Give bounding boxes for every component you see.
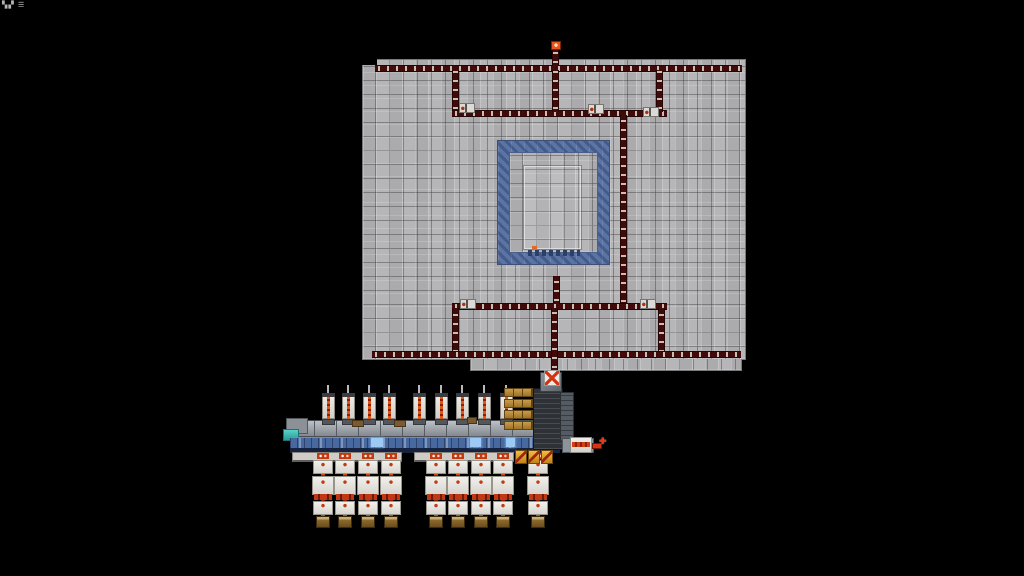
yellow-chest[interactable] — [515, 450, 527, 464]
platform-loader[interactable] — [544, 370, 560, 386]
machine-lower[interactable] — [471, 501, 491, 515]
transport-belt[interactable] — [658, 308, 665, 355]
machine-upper[interactable] — [358, 460, 378, 474]
machine-cap — [342, 393, 355, 397]
debug-overlay: ▚▞ ☰ — [2, 2, 25, 9]
heat-stripe — [440, 394, 443, 419]
furnace-machine[interactable] — [435, 385, 448, 425]
red-band — [529, 494, 547, 500]
inserter-mark — [317, 453, 329, 459]
machine-middle[interactable] — [470, 476, 492, 495]
machine-middle[interactable] — [357, 476, 379, 495]
belt-splitter[interactable] — [643, 107, 659, 117]
machine-lower[interactable] — [381, 501, 401, 515]
inserter-mark — [475, 453, 487, 459]
heat-stripe — [368, 394, 371, 419]
wooden-chest[interactable] — [384, 516, 398, 528]
red-band — [359, 494, 377, 500]
red-band — [427, 494, 445, 500]
machine-cap — [435, 393, 448, 397]
wooden-chest[interactable] — [496, 516, 510, 528]
assembler-column[interactable] — [527, 460, 549, 528]
red-cross-item-icon: ✚ — [599, 438, 607, 447]
transport-belt[interactable] — [552, 70, 559, 112]
gold-plate-stack[interactable] — [504, 388, 533, 397]
machine-cap — [383, 393, 396, 397]
machine-middle[interactable] — [312, 476, 334, 495]
assembler-column[interactable] — [380, 460, 402, 528]
inserter-mark — [362, 453, 374, 459]
small-crate[interactable] — [394, 420, 406, 427]
heat-stripe — [388, 394, 391, 419]
red-band — [314, 494, 332, 500]
wooden-chest[interactable] — [429, 516, 443, 528]
conveyor-lane — [290, 438, 560, 448]
gold-plate-stack[interactable] — [504, 399, 533, 408]
right-machine-stripe — [572, 442, 590, 447]
assembler-column[interactable] — [447, 460, 469, 528]
heat-stripe — [483, 394, 486, 419]
wooden-chest[interactable] — [316, 516, 330, 528]
machine-upper[interactable] — [493, 460, 513, 474]
inserter-mark — [385, 453, 397, 459]
machine-middle[interactable] — [334, 476, 356, 495]
yellow-chest[interactable] — [528, 450, 540, 464]
transport-belt[interactable] — [452, 303, 667, 310]
transport-belt[interactable] — [620, 115, 627, 305]
red-band — [494, 494, 512, 500]
machine-upper[interactable] — [426, 460, 446, 474]
wooden-chest[interactable] — [474, 516, 488, 528]
machine-lower[interactable] — [426, 501, 446, 515]
machine-upper[interactable] — [335, 460, 355, 474]
machine-base — [435, 419, 448, 425]
machine-upper[interactable] — [448, 460, 468, 474]
machine-middle[interactable] — [380, 476, 402, 495]
assembler-column[interactable] — [312, 460, 334, 528]
transport-belt[interactable] — [452, 308, 459, 355]
furnace-machine[interactable] — [413, 385, 426, 425]
machine-lower[interactable] — [358, 501, 378, 515]
furnace-machine[interactable] — [383, 385, 396, 425]
machine-base — [413, 419, 426, 425]
machine-upper[interactable] — [381, 460, 401, 474]
heat-stripe — [347, 394, 350, 419]
gold-plate-stack[interactable] — [504, 410, 533, 419]
platform-corner-notch — [361, 58, 377, 65]
cargo-elevator[interactable] — [533, 388, 563, 450]
heat-stripe — [461, 394, 464, 419]
conveyor-cargo-item[interactable] — [371, 438, 383, 447]
game-viewport: ▚▞ ☰ ✚ — [0, 0, 1024, 576]
machine-lower[interactable] — [335, 501, 355, 515]
machine-lower[interactable] — [493, 501, 513, 515]
machine-lower[interactable] — [448, 501, 468, 515]
stray-item[interactable] — [532, 246, 537, 250]
heat-stripe — [327, 394, 330, 419]
wooden-chest[interactable] — [531, 516, 545, 528]
machine-cap — [478, 393, 491, 397]
machine-cap — [322, 393, 335, 397]
gold-plate-stack[interactable] — [504, 421, 533, 430]
red-band — [449, 494, 467, 500]
machine-cap — [363, 393, 376, 397]
assembler-column[interactable] — [334, 460, 356, 528]
assembler-column[interactable] — [470, 460, 492, 528]
machine-base — [478, 419, 491, 425]
inserter-mark — [430, 453, 442, 459]
wooden-chest[interactable] — [361, 516, 375, 528]
machine-cap — [456, 393, 469, 397]
conveyor-cargo-item[interactable] — [470, 438, 481, 447]
machine-middle[interactable] — [492, 476, 514, 495]
furnace-machine[interactable] — [322, 385, 335, 425]
machine-base — [363, 419, 376, 425]
transport-belt[interactable] — [656, 70, 663, 112]
furnace-machine[interactable] — [478, 385, 491, 425]
platform-grid-lower-strip — [470, 359, 742, 371]
small-crate[interactable] — [352, 420, 364, 427]
wooden-chest[interactable] — [338, 516, 352, 528]
furnace-machine[interactable] — [342, 385, 355, 425]
cargo-port[interactable] — [551, 41, 561, 50]
machine-middle[interactable] — [425, 476, 447, 495]
machine-lower[interactable] — [313, 501, 333, 515]
machine-base — [322, 419, 335, 425]
machine-cap — [413, 393, 426, 397]
assembler-column[interactable] — [357, 460, 379, 528]
belt-splitter[interactable] — [640, 299, 656, 309]
belt-splitter[interactable] — [459, 103, 475, 113]
machine-middle[interactable] — [527, 476, 549, 495]
heat-stripe — [418, 394, 421, 419]
elevator-wing[interactable] — [560, 392, 574, 442]
red-band — [382, 494, 400, 500]
red-band — [472, 494, 490, 500]
assembler-column[interactable] — [425, 460, 447, 528]
transport-belt[interactable] — [553, 276, 560, 304]
red-band — [336, 494, 354, 500]
transport-belt[interactable] — [452, 70, 459, 112]
belt-splitter[interactable] — [588, 104, 604, 114]
machine-lower[interactable] — [528, 501, 548, 515]
furnace-machine[interactable] — [363, 385, 376, 425]
inserter-mark — [452, 453, 464, 459]
small-crate[interactable] — [467, 417, 477, 424]
transport-belt[interactable] — [452, 110, 667, 117]
inner-foundation-pad — [524, 166, 581, 249]
inserter-mark — [339, 453, 351, 459]
wooden-chest[interactable] — [451, 516, 465, 528]
belt-splitter[interactable] — [460, 299, 476, 309]
inserter-mark — [497, 453, 509, 459]
assembler-column[interactable] — [492, 460, 514, 528]
conveyor-cargo-item[interactable] — [506, 438, 515, 447]
yellow-chest[interactable] — [541, 450, 553, 464]
machine-upper[interactable] — [471, 460, 491, 474]
ring-bottom-markings — [528, 250, 580, 256]
machine-middle[interactable] — [447, 476, 469, 495]
machine-upper[interactable] — [313, 460, 333, 474]
